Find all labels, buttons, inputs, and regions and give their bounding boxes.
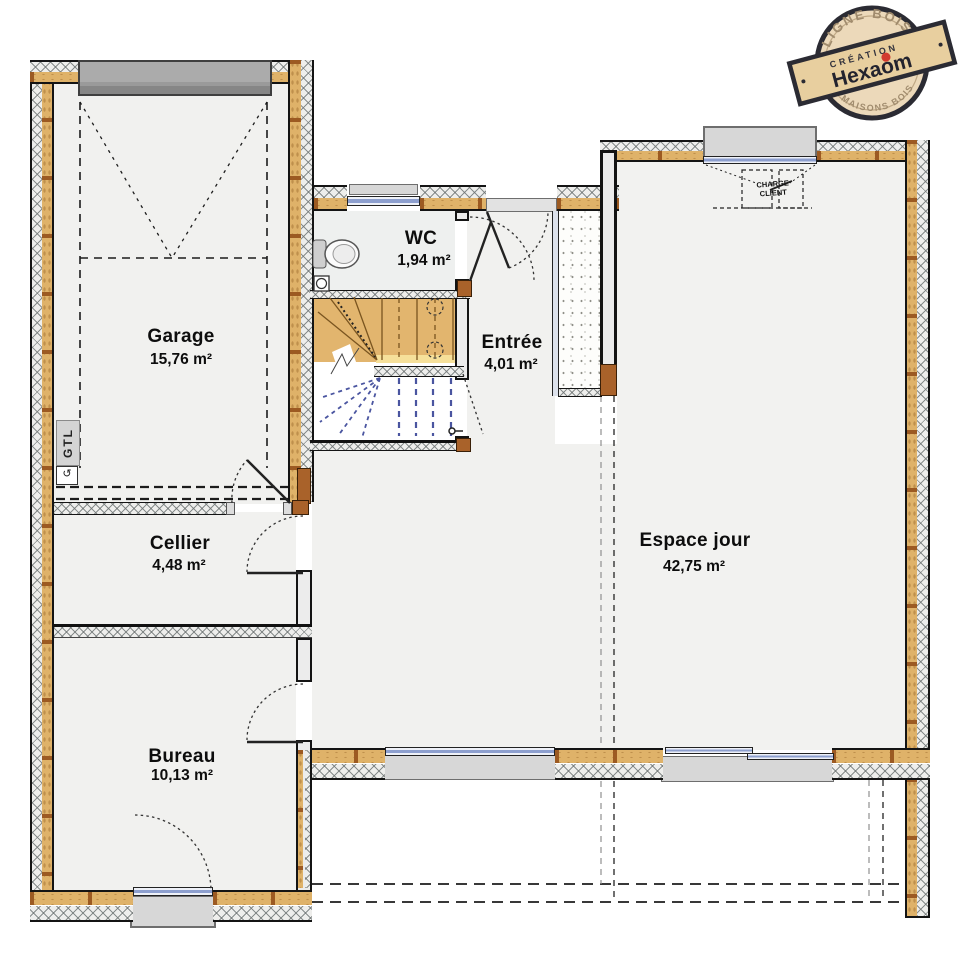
espace-north-window (703, 156, 817, 164)
bureau-east-wall-lower (296, 740, 312, 892)
wc-north-wall-b (420, 185, 486, 211)
garage-door-clearance (56, 102, 310, 499)
espace-south-wall-b (555, 748, 663, 780)
vent-icon: ↺ (62, 468, 71, 480)
west-exterior-wall (30, 60, 54, 922)
espace-jour-area: 42,75 m² (663, 558, 725, 576)
stair-east-wall-top (455, 211, 469, 221)
bureau-window (133, 887, 213, 896)
wc-door-threshold (457, 280, 472, 297)
east-exterior-wall (905, 140, 930, 918)
garage-label: Garage (147, 326, 214, 348)
stair-mid-divider (374, 366, 464, 377)
garage-east-wall (288, 60, 314, 502)
garage-door (78, 60, 272, 96)
cellier-door-frame-post (297, 468, 311, 504)
stair-south-wall (310, 440, 468, 451)
entree-area: 4,01 m² (484, 356, 537, 374)
wc-window (347, 196, 420, 206)
porch-south-curb (558, 388, 602, 397)
entry-door-sill (486, 198, 557, 212)
bureau-area: 10,13 m² (151, 767, 213, 785)
wc-window-sill (349, 184, 418, 195)
vent-symbol-box: ↺ (56, 466, 78, 485)
cellier-bureau-wall (54, 624, 312, 638)
bay-window-1-sill (383, 754, 557, 780)
charge-client-note: CHARGE CLIENT (756, 179, 790, 198)
wc-south-wall (310, 290, 470, 299)
stair-door-threshold (456, 438, 471, 452)
porch-post (600, 364, 617, 396)
gtl-label: GTL (61, 428, 75, 458)
gtl-box: GTL (56, 420, 80, 466)
bay-window-1 (385, 747, 555, 756)
stairs-landing-strip (376, 355, 455, 363)
wc-label: WC (405, 228, 437, 250)
overhang-vertical-dashes (601, 396, 883, 902)
garage-area: 15,76 m² (150, 351, 212, 369)
garage-cellier-door-jamb-right (283, 502, 292, 515)
entree-glazing (552, 211, 559, 396)
cellier-label: Cellier (150, 533, 210, 555)
espace-jour-label: Espace jour (639, 530, 750, 552)
garage-cellier-door-jamb-left (226, 502, 235, 515)
bureau-window-sill (130, 895, 216, 928)
wc-north-wall-a (314, 185, 347, 211)
bureau-south-wall-left (30, 890, 133, 922)
entree-label: Entrée (482, 332, 543, 354)
bureau-east-wall-upper (296, 638, 312, 682)
terrace-dashes (312, 884, 928, 902)
garage-cellier-door-post (292, 500, 309, 515)
sliding-bay-pane-left (665, 747, 753, 754)
garage-north-wall-left (30, 60, 78, 84)
espace-west-wall (600, 150, 617, 396)
espace-south-wall-c (832, 748, 930, 780)
wc-area: 1,94 m² (397, 252, 450, 270)
floor-plan-canvas: { "rooms": [ {"id":"garage","name":"Gara… (0, 0, 960, 958)
cellier-area: 4,48 m² (152, 557, 205, 575)
bureau-south-wall-right (213, 890, 312, 922)
sliding-bay-pane-right (747, 753, 834, 760)
stairs-upper-flight (314, 296, 455, 362)
bureau-label: Bureau (148, 746, 215, 768)
cellier-east-wall (296, 570, 312, 626)
garage-cellier-wall (54, 502, 228, 515)
